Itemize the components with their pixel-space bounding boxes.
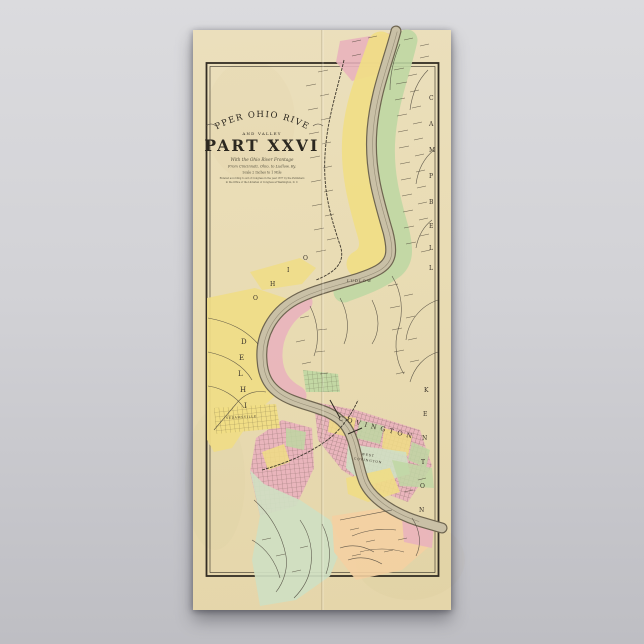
product-mockup-background: UPPER OHIO RIVER AND VALLEY PART XXVI Wi… bbox=[0, 0, 644, 644]
map-poster bbox=[193, 30, 451, 610]
